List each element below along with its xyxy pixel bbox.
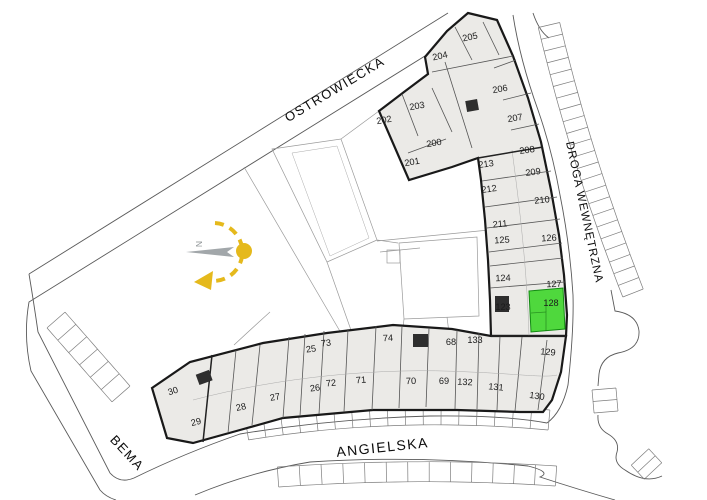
- compass-arc-arrowhead: [194, 271, 213, 290]
- walkway-east: [327, 262, 352, 333]
- unit-label-73[interactable]: 73: [320, 337, 331, 348]
- unit-label-126[interactable]: 126: [541, 232, 557, 243]
- unit-label-211[interactable]: 211: [492, 218, 507, 229]
- unit-label-132[interactable]: 132: [457, 377, 473, 388]
- compass-sun-dot: [236, 243, 252, 259]
- unit-label-26[interactable]: 26: [309, 382, 321, 393]
- north-arrow-icon: [186, 247, 234, 257]
- parking-angielska-south: [277, 462, 556, 487]
- unit-label-208[interactable]: 208: [519, 144, 536, 156]
- unit-label-133[interactable]: 133: [467, 335, 482, 345]
- unit-label-210[interactable]: 210: [534, 194, 550, 206]
- unit-label-71[interactable]: 71: [355, 375, 366, 386]
- compass: N: [186, 223, 252, 290]
- stair-core-1: [465, 99, 479, 112]
- street-label-angielska: ANGIELSKA: [335, 434, 429, 460]
- unit-label-70[interactable]: 70: [406, 376, 417, 386]
- parking-corner-b: [631, 449, 662, 479]
- walkway-to-band: [234, 312, 270, 345]
- parking-bema: [47, 312, 130, 402]
- road-ostrowiecka-upper: [29, 13, 448, 274]
- unit-label-128-highlighted[interactable]: 128: [543, 298, 558, 308]
- parking-corner-a: [592, 388, 618, 413]
- unit-label-212[interactable]: 212: [481, 183, 498, 195]
- unit-label-74[interactable]: 74: [383, 333, 394, 344]
- unit-label-131[interactable]: 131: [488, 381, 504, 392]
- unit-label-123[interactable]: 123: [495, 302, 510, 312]
- courtyard-parallelogram-inner: [292, 146, 369, 256]
- street-label-bema: BEMA: [107, 432, 147, 474]
- stair-core-4: [413, 334, 428, 347]
- courtyard-parallelogram: [272, 139, 377, 262]
- unit-label-209[interactable]: 209: [525, 166, 542, 178]
- unit-label-125[interactable]: 125: [494, 234, 510, 245]
- unit-label-130[interactable]: 130: [529, 390, 546, 402]
- unit-label-127[interactable]: 127: [546, 279, 562, 290]
- site-plan-svg: N OSTROWIECKADROGA WEWNĘTRZNAANGIELSKABE…: [0, 0, 707, 500]
- walkway-to-wing: [341, 111, 379, 139]
- unit-label-69[interactable]: 69: [439, 376, 449, 386]
- road-corner-scallops: [598, 290, 662, 479]
- unit-label-28[interactable]: 28: [235, 401, 247, 413]
- unit-label-213[interactable]: 213: [478, 158, 495, 170]
- unit-label-72[interactable]: 72: [325, 377, 336, 388]
- compass-north-label: N: [194, 241, 204, 247]
- walkway-to-strip-a: [377, 230, 489, 241]
- court-block: [399, 237, 479, 319]
- unit-label-25[interactable]: 25: [305, 343, 317, 354]
- site-plan: N OSTROWIECKADROGA WEWNĘTRZNAANGIELSKABE…: [0, 0, 707, 500]
- highlighted-unit-polygon[interactable]: [529, 288, 565, 332]
- unit-label-124[interactable]: 124: [495, 273, 511, 284]
- court-corridor-lines: [377, 240, 449, 337]
- unit-label-129[interactable]: 129: [540, 346, 556, 357]
- highlighted-unit-128[interactable]: [529, 288, 565, 332]
- unit-label-27[interactable]: 27: [269, 391, 281, 403]
- unit-label-68[interactable]: 68: [446, 337, 456, 347]
- court-block-notch: [387, 250, 400, 263]
